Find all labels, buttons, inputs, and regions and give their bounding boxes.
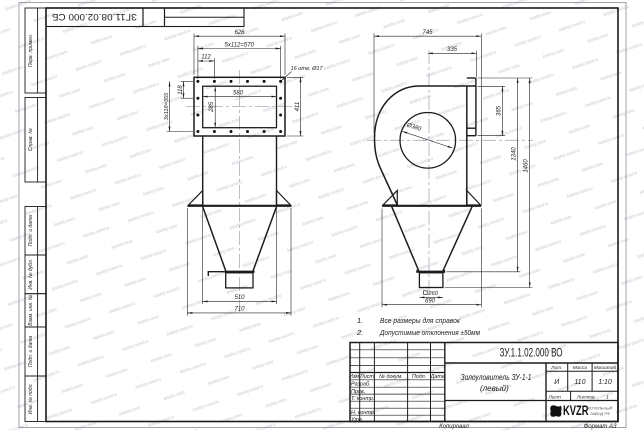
svg-text:Лист: Лист <box>359 374 374 380</box>
svg-text:Подп. и дата: Подп. и дата <box>28 215 34 247</box>
svg-text:KVZR: KVZR <box>563 403 589 418</box>
svg-text:ЗАВОД РФ: ЗАВОД РФ <box>590 411 610 416</box>
svg-text:Подп.: Подп. <box>412 374 426 380</box>
svg-text:745: 745 <box>422 30 433 36</box>
svg-text:5х112=570: 5х112=570 <box>224 42 254 48</box>
svg-text:3х118=355: 3х118=355 <box>164 92 170 120</box>
svg-text:Инв. № дубл.: Инв. № дубл. <box>28 259 34 290</box>
svg-text:Допустимые отклонения ±50мм: Допустимые отклонения ±50мм <box>379 328 480 337</box>
svg-text:Т. контр.: Т. контр. <box>351 396 374 402</box>
svg-text:Н. контр.: Н. контр. <box>351 410 375 416</box>
svg-text:Инв. № подл.: Инв. № подл. <box>28 383 34 414</box>
svg-text:ЗУ.1.1.02.000 ВО: ЗУ.1.1.02.000 ВО <box>500 346 563 360</box>
svg-text:2.: 2. <box>356 328 363 337</box>
svg-text:Перв. примен.: Перв. примен. <box>28 34 34 67</box>
svg-text:Справ. №: Справ. № <box>28 128 34 151</box>
svg-text:ЗГ11.08.02.000 СБ: ЗГ11.08.02.000 СБ <box>52 11 137 22</box>
svg-text:Лит.: Лит. <box>550 365 562 371</box>
svg-text:626: 626 <box>234 30 245 36</box>
svg-text:КОТЕЛЬНЫЙ: КОТЕЛЬНЫЙ <box>588 406 613 411</box>
svg-text:580: 580 <box>233 90 244 96</box>
svg-text:710: 710 <box>234 307 245 313</box>
svg-text:Листов: Листов <box>576 394 595 400</box>
svg-text:Все размеры для справок: Все размеры для справок <box>380 316 460 325</box>
svg-text:Изм.: Изм. <box>349 374 361 380</box>
svg-text:510: 510 <box>234 295 245 301</box>
svg-text:Разраб.: Разраб. <box>351 382 371 388</box>
svg-text:285: 285 <box>209 101 215 113</box>
svg-text:Утв.: Утв. <box>350 417 363 423</box>
svg-text:(левый): (левый) <box>480 384 509 393</box>
svg-text:Масштаб: Масштаб <box>594 365 617 371</box>
svg-text:Золоуловитель ЗУ-1-1: Золоуловитель ЗУ-1-1 <box>461 372 532 382</box>
svg-text:Лист: Лист <box>548 394 561 400</box>
svg-text:Формат А3: Формат А3 <box>584 424 617 430</box>
svg-text:260: 260 <box>427 291 438 297</box>
svg-text:1340: 1340 <box>512 147 518 161</box>
svg-text:1.: 1. <box>357 316 363 325</box>
svg-text:16 отв. Ø17: 16 отв. Ø17 <box>291 66 324 72</box>
svg-text:365: 365 <box>496 105 502 116</box>
svg-text:1: 1 <box>606 394 609 400</box>
svg-text:110: 110 <box>574 379 585 386</box>
svg-text:690: 690 <box>425 299 436 305</box>
svg-text:1460: 1460 <box>524 159 530 173</box>
svg-text:335: 335 <box>447 47 458 53</box>
svg-text:Пров.: Пров. <box>351 389 365 395</box>
svg-text:112: 112 <box>201 55 211 61</box>
svg-text:№ докум.: № докум. <box>379 374 403 380</box>
svg-text:Дата: Дата <box>430 374 445 380</box>
svg-text:Копировал: Копировал <box>439 424 469 430</box>
svg-text:Подп. и дата: Подп. и дата <box>28 336 34 368</box>
svg-text:1:10: 1:10 <box>598 379 612 386</box>
svg-text:118: 118 <box>178 85 184 95</box>
svg-text:411: 411 <box>295 102 301 112</box>
svg-text:Взам. инв. №: Взам. инв. № <box>28 294 34 326</box>
svg-text:Масса: Масса <box>573 365 588 371</box>
